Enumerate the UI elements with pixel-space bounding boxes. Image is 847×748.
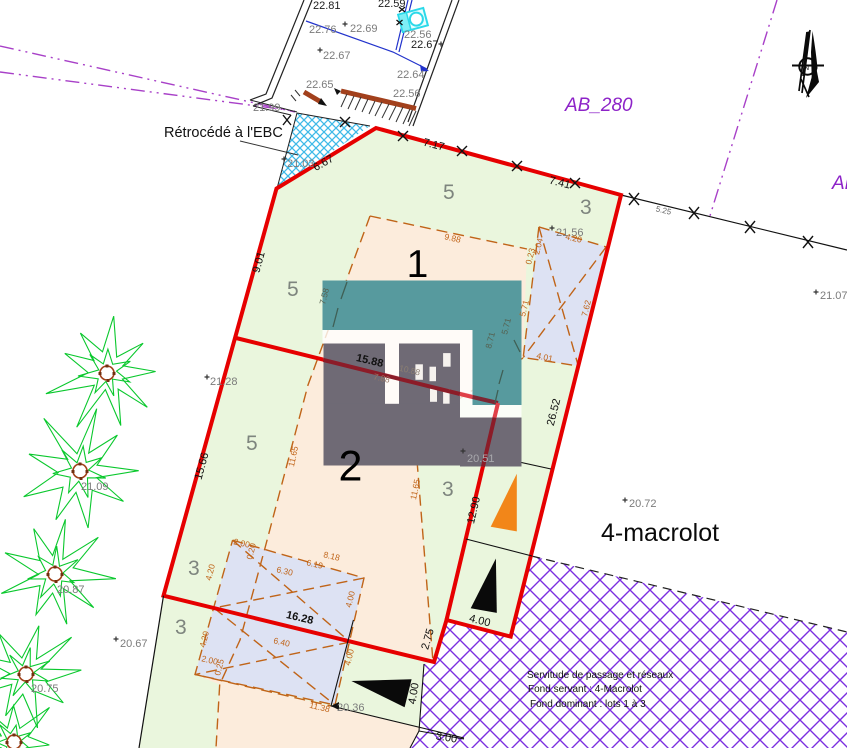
svg-text:20.87: 20.87 xyxy=(57,584,85,596)
svg-text:4-macrolot: 4-macrolot xyxy=(601,519,719,547)
svg-text:21.99: 21.99 xyxy=(253,102,281,114)
svg-text:5: 5 xyxy=(443,181,455,204)
svg-text:Fond dominant : lots 1 à 3: Fond dominant : lots 1 à 3 xyxy=(530,699,646,710)
svg-text:Fond servant : 4-Macrolot: Fond servant : 4-Macrolot xyxy=(528,684,642,695)
svg-text:22.67: 22.67 xyxy=(323,50,351,62)
svg-text:22.81: 22.81 xyxy=(313,0,341,12)
svg-text:20.75: 20.75 xyxy=(31,683,59,695)
svg-text:20.51: 20.51 xyxy=(467,453,495,465)
svg-text:22.69: 22.69 xyxy=(350,23,378,35)
svg-text:21.07: 21.07 xyxy=(820,290,847,302)
svg-text:21.09: 21.09 xyxy=(81,481,109,493)
svg-text:21.03: 21.03 xyxy=(287,158,315,170)
svg-text:3: 3 xyxy=(442,478,454,501)
svg-text:5: 5 xyxy=(246,432,258,455)
svg-text:AB_280: AB_280 xyxy=(564,95,633,116)
svg-text:3: 3 xyxy=(175,616,187,639)
svg-text:5: 5 xyxy=(287,278,299,301)
svg-text:Servitude de passage et réseau: Servitude de passage et réseaux xyxy=(527,670,673,681)
svg-text:3: 3 xyxy=(188,557,200,580)
svg-text:22.56: 22.56 xyxy=(393,88,421,100)
svg-text:22.59: 22.59 xyxy=(378,0,406,10)
svg-text:20.36: 20.36 xyxy=(337,702,365,714)
svg-text:Rétrocédé à l'EBC: Rétrocédé à l'EBC xyxy=(164,125,283,141)
svg-text:20.72: 20.72 xyxy=(629,498,657,510)
svg-text:3: 3 xyxy=(580,196,592,219)
svg-text:22.67: 22.67 xyxy=(411,39,439,51)
svg-text:2: 2 xyxy=(339,443,363,491)
svg-text:20.67: 20.67 xyxy=(120,638,148,650)
svg-text:22.65: 22.65 xyxy=(306,79,334,91)
svg-text:AB: AB xyxy=(831,173,847,194)
svg-text:N: N xyxy=(804,65,809,72)
svg-text:21.28: 21.28 xyxy=(210,376,238,388)
svg-text:22.76: 22.76 xyxy=(309,24,337,36)
svg-text:22.64: 22.64 xyxy=(397,69,425,81)
svg-text:1: 1 xyxy=(407,243,429,286)
